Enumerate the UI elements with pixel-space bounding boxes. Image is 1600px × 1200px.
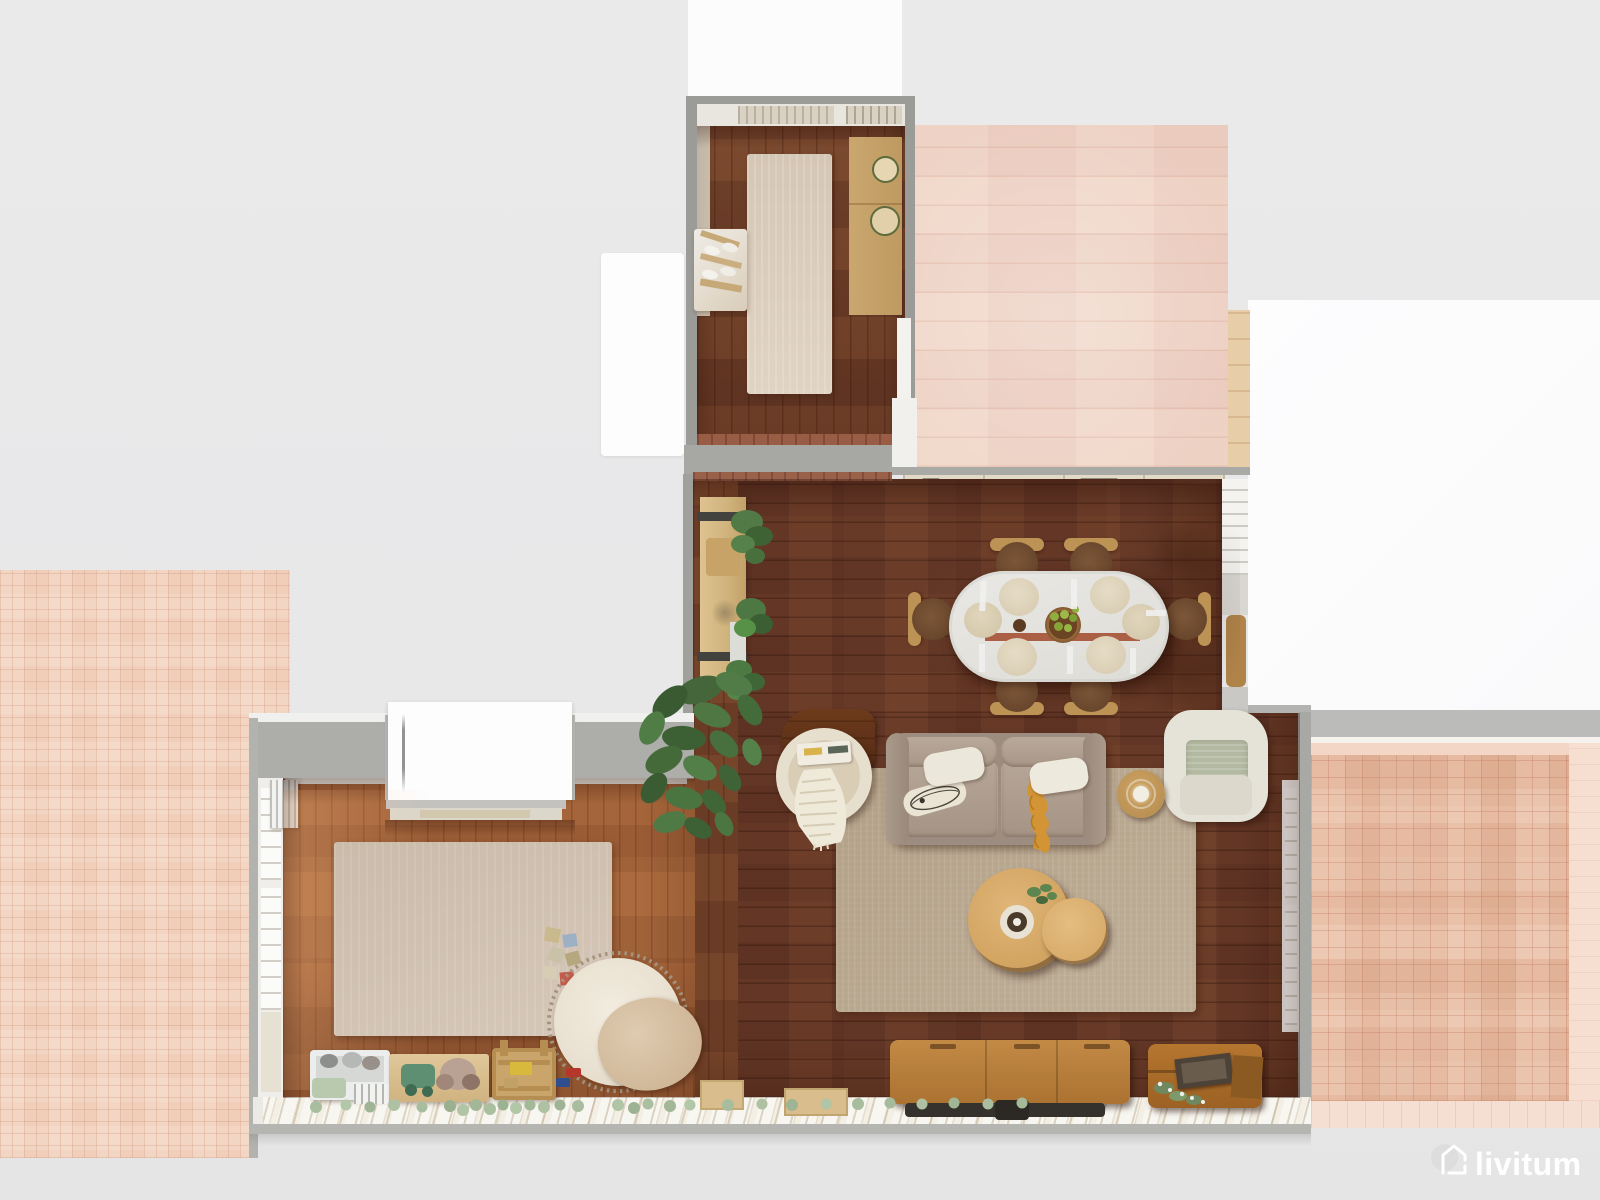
svg-text:livitum: livitum — [1475, 1146, 1582, 1182]
